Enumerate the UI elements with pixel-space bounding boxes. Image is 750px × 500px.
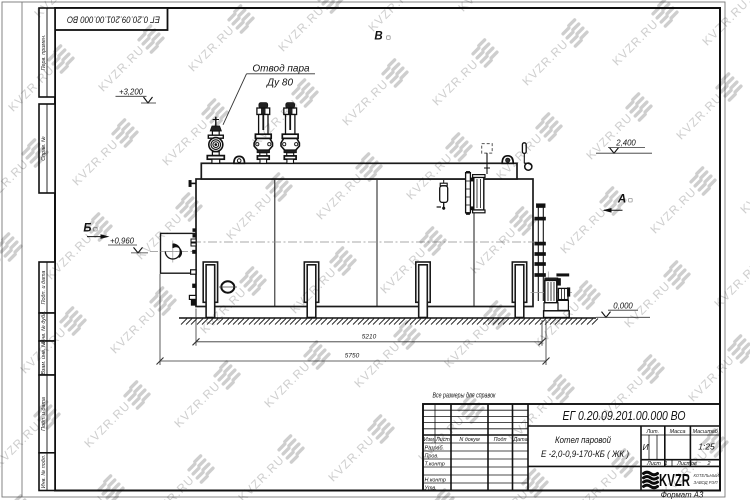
svg-text:Е -2,0-0,9-170-КБ ( ЖК ): Е -2,0-0,9-170-КБ ( ЖК ) <box>541 449 629 459</box>
svg-text:2,400: 2,400 <box>615 139 636 148</box>
svg-text:Лит.: Лит. <box>645 429 659 435</box>
svg-text:ЗАВОД РЭП: ЗАВОД РЭП <box>694 480 718 486</box>
svg-text:Отвод пара: Отвод пара <box>252 64 310 75</box>
svg-text:+3,200: +3,200 <box>119 87 144 96</box>
svg-text:Утв.: Утв. <box>424 485 437 491</box>
svg-text:Подп: Подп <box>494 437 507 443</box>
svg-text:N докум: N докум <box>459 437 480 443</box>
svg-text:Масса: Масса <box>670 429 686 435</box>
svg-text:Лист: Лист <box>646 461 661 467</box>
svg-text:0,000: 0,000 <box>613 301 633 310</box>
svg-text:+0,960: +0,960 <box>110 236 135 245</box>
svg-text:Инв. № подл.: Инв. № подл. <box>41 455 47 488</box>
svg-text:И: И <box>642 442 649 452</box>
svg-text:5210: 5210 <box>362 334 377 341</box>
svg-text:Н.контр: Н.контр <box>425 477 446 483</box>
svg-text:5750: 5750 <box>345 353 360 360</box>
svg-text:1: 1 <box>665 461 668 467</box>
svg-text:Т.контр: Т.контр <box>425 461 445 467</box>
svg-text:ЕГ 0.20.09.201.00.000 ВО: ЕГ 0.20.09.201.00.000 ВО <box>66 13 160 24</box>
svg-text:2: 2 <box>707 461 711 467</box>
svg-text:Ду 80: Ду 80 <box>266 78 293 89</box>
svg-text:Все размеры для справок: Все размеры для справок <box>433 391 497 399</box>
svg-text:ЕГ 0.20.09.201.00.000 ВО: ЕГ 0.20.09.201.00.000 ВО <box>563 409 686 423</box>
svg-text:Котел паровой: Котел паровой <box>555 435 611 445</box>
